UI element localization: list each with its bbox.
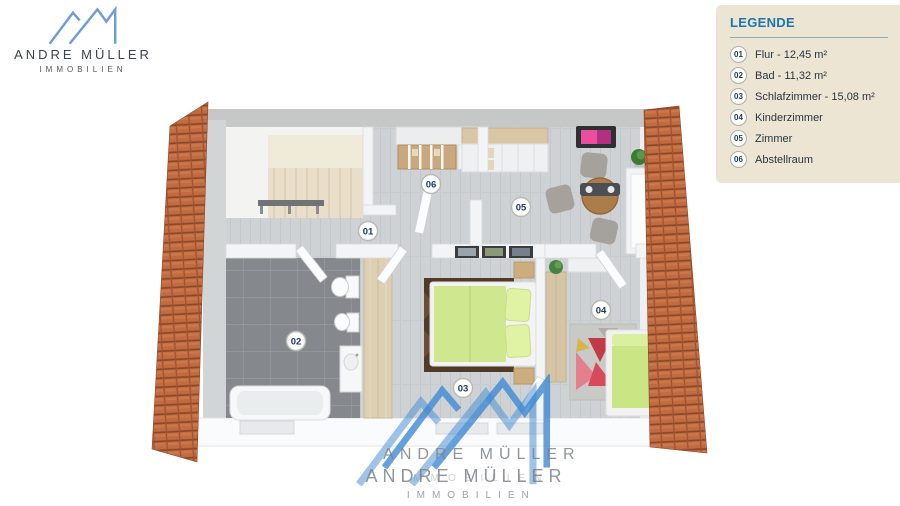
svg-text:04: 04 [596,306,607,317]
legend-item-bad: 02 Bad - 11,32 m² [730,67,888,84]
legend-panel: LEGENDE 01 Flur - 12,45 m² 02 Bad - 11,3… [716,5,900,183]
storage-shelf [398,145,456,169]
stair-railing [258,200,324,206]
legend-badge: 02 [730,67,747,84]
nightstand [514,368,534,384]
legend-badge: 06 [730,151,747,168]
svg-text:05: 05 [516,203,527,214]
kids-bed [606,330,654,416]
cabinet-front [462,144,548,172]
legend-label: Schlafzimmer - 15,08 m² [755,91,875,103]
left-exterior-wall [203,120,226,422]
agency-logo: ANDRE MÜLLER IMMOBILIEN [8,6,158,74]
svg-text:03: 03 [458,384,469,395]
nightstand [514,262,534,278]
roof-slope-left [152,102,208,462]
window-bedroom-2 [497,423,543,434]
staircase-area [226,127,363,218]
bed-pillow [505,324,531,358]
floorplan-page: 01 02 03 04 05 06 [0,0,900,506]
svg-text:02: 02 [291,337,302,348]
legend-item-zimmer: 05 Zimmer [730,130,888,147]
wall-pictures [455,246,533,258]
top-exterior-wall [205,109,652,127]
chair [580,152,608,180]
legend-label: Zimmer [755,133,792,145]
legend-divider [730,37,888,38]
legend-title: LEGENDE [730,15,888,30]
agency-name: ANDRE MÜLLER [8,47,158,62]
bed-pillow [505,288,531,322]
legend-label: Flur - 12,45 m² [755,49,827,61]
room-badge-06: 06 [422,175,441,194]
room-badge-04: 04 [592,301,611,320]
room-badge-01: 01 [359,222,378,241]
room-badge-05: 05 [512,198,531,217]
roof-slope-right [644,106,707,453]
am-monogram-icon [44,6,122,46]
legend-badge: 03 [730,88,747,105]
bidet [335,313,360,332]
legend-item-flur: 01 Flur - 12,45 m² [730,46,888,63]
legend-item-schlafzimmer: 03 Schlafzimmer - 15,08 m² [730,88,888,105]
legend-label: Kinderzimmer [755,112,823,124]
legend-item-abstellraum: 06 Abstellraum [730,151,888,168]
toilet [332,276,360,298]
legend-item-kinderzimmer: 04 Kinderzimmer [730,109,888,126]
svg-text:01: 01 [363,227,374,238]
legend-label: Bad - 11,32 m² [755,70,827,82]
window-bedroom [436,423,488,434]
window-bath [240,421,294,434]
legend-badge: 01 [730,46,747,63]
legend-badge: 05 [730,130,747,147]
sideboard [546,260,566,382]
agency-tagline: IMMOBILIEN [8,65,158,74]
svg-text:06: 06 [426,180,437,191]
room-badge-03: 03 [454,379,473,398]
room-badge-02: 02 [287,332,306,351]
legend-label: Abstellraum [755,154,813,166]
legend-badge: 04 [730,109,747,126]
counter-top [462,128,548,144]
wall-tv [576,126,616,148]
sink-cabinet [340,346,362,392]
